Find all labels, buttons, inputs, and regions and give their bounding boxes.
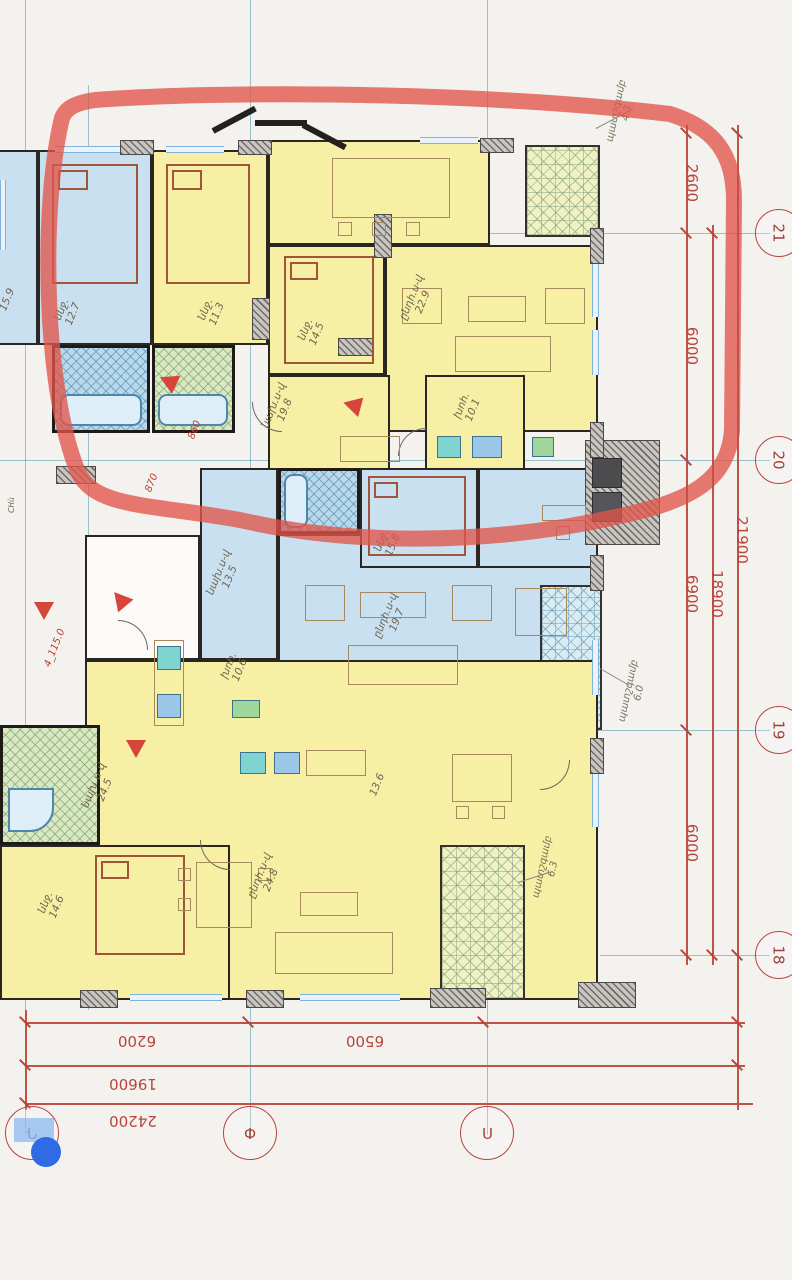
dimension-line [25,1065,745,1067]
dim-21900: 21900 [733,516,751,564]
dim-6500: 6500 [346,1032,384,1050]
dim-18900: 18900 [708,570,726,618]
selection-handle[interactable] [31,1137,61,1167]
axis-bubble-O: Ո [460,1106,514,1160]
dim-2600: 2600 [683,164,701,202]
floor-plan-photo: 15.9 ննջ.12.7 ննջ.11.3 ննջ.14.5 ընդհ.ս-վ… [0,0,792,1280]
dim-6900: 6900 [683,575,701,613]
dim-6200: 6200 [118,1032,156,1050]
axis-bubble-P: Փ [223,1106,277,1160]
dimension-line [737,125,739,1110]
dimension-line [25,1022,745,1024]
dim-19600: 19600 [109,1075,157,1093]
dim-6000-a: 6000 [683,327,701,365]
dim-6000-b: 6000 [683,824,701,862]
dim-24200: 24200 [109,1112,157,1130]
dimension-line [25,1103,753,1105]
